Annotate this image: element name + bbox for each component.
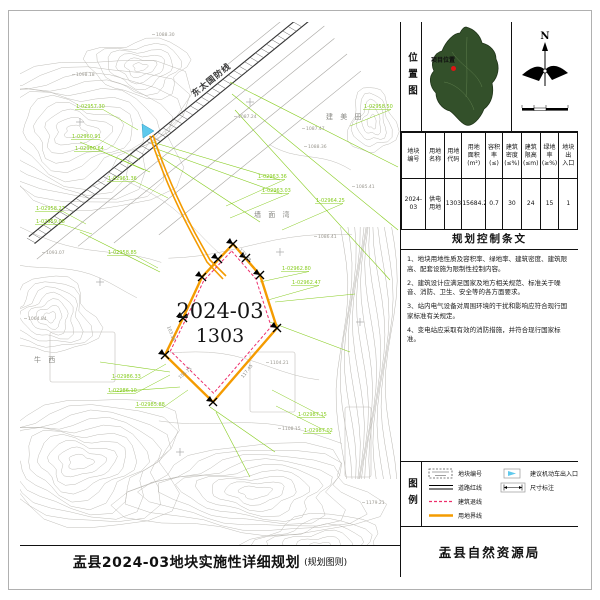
cadastral-code-label: 1-02985.88 xyxy=(136,402,165,408)
parcel-code-label: 2024-03 xyxy=(176,299,263,323)
spot-elevation-label: 1087.24 xyxy=(238,114,257,120)
highway-hatch xyxy=(239,66,247,71)
highway-hatch xyxy=(190,106,198,111)
legend-setback-line-icon xyxy=(428,496,454,507)
legend-item-label: 地块编号 xyxy=(458,469,482,478)
spot-elevation-label: 1085.41 xyxy=(356,184,375,190)
project-location-marker xyxy=(451,66,456,71)
highway-hatch xyxy=(87,190,95,195)
secondary-road-line xyxy=(37,26,324,259)
legend-road-redline-icon xyxy=(428,482,454,493)
compass-cell: N xyxy=(512,22,578,131)
slope-contour xyxy=(357,227,369,479)
table-header-cell: 容积率(≤) xyxy=(486,133,503,179)
legend-item: 道路红线 xyxy=(428,482,482,493)
table-value-cell: 0.7 xyxy=(486,179,503,230)
contour-line xyxy=(58,447,106,477)
table-value-cell: 2024-03 xyxy=(402,179,426,230)
highway-hatch xyxy=(27,238,35,243)
provisions-section: 规划控制条文 1、地块用地性质及容积率、绿地率、建筑密度、建筑限高、配套设施为限… xyxy=(401,230,578,462)
highway-hatch xyxy=(288,26,296,31)
highway-hatch xyxy=(272,40,280,45)
table-value-cell: 15 xyxy=(540,179,559,230)
north-arrow-icon: N xyxy=(512,22,578,130)
spot-elevation-label: 1087.47 xyxy=(306,126,325,132)
slope-contour xyxy=(352,227,364,479)
highway-hatch xyxy=(76,198,84,203)
legend-item-label: 建筑退线 xyxy=(458,497,482,506)
title-bar: 盂县2024-03地块实施性详细规划 (规划图则) xyxy=(20,545,400,577)
legend-parcel-number-icon xyxy=(428,468,454,479)
slope-contour xyxy=(373,227,385,479)
slope-contour xyxy=(348,227,360,479)
legend-label-cell: 图例 xyxy=(401,462,422,526)
highway-hatch xyxy=(223,79,231,84)
highway-hatch xyxy=(38,229,46,234)
contour-line xyxy=(20,417,162,515)
contour-line xyxy=(125,451,367,531)
provision-item: 1、地块用地性质及容积率、绿地率、建筑密度、建筑限高、配套设施为限制性控制内容。 xyxy=(407,255,572,275)
highway-hatch xyxy=(163,128,171,133)
contour-line xyxy=(20,227,161,262)
highway-hatch xyxy=(293,22,301,27)
spot-elevation-label: 1086.41 xyxy=(318,234,337,240)
cadastral-code-label: 1-02986.10 xyxy=(108,388,137,394)
highway-hatch xyxy=(130,154,138,159)
highway-hatch xyxy=(212,88,220,93)
cadastral-code-label: 1-02958.85 xyxy=(108,250,137,256)
cadastral-code-label: 1-02958.27 xyxy=(36,206,65,212)
contour-line xyxy=(297,536,342,545)
contour-line xyxy=(37,434,125,494)
table-header-cell: 地块编号 xyxy=(402,133,426,179)
cadastral-line xyxy=(216,412,250,477)
right-panel: 位置图 项目位置 N xyxy=(400,22,578,577)
contour-line xyxy=(195,470,309,517)
cadastral-code-label: 1-02961.36 xyxy=(108,176,137,182)
topographic-map-canvas: 东太国防线建 美 田墙 面 湾牛 西1088.301098.181087.241… xyxy=(20,22,400,545)
highway-hatch xyxy=(119,163,127,168)
slope-contour xyxy=(369,227,381,479)
contour-line xyxy=(212,477,296,512)
slope-contour xyxy=(336,227,348,479)
spot-elevation-label: 1064.84 xyxy=(28,316,47,322)
legend-land-boundary-icon xyxy=(428,510,454,521)
label-leader-line xyxy=(107,256,158,269)
spot-elevation-label: 1098.18 xyxy=(76,72,95,78)
slope-contour xyxy=(385,227,397,479)
table-header-cell: 建筑限高(≤m) xyxy=(521,133,540,179)
cadastral-line xyxy=(210,407,275,452)
cadastral-code-label: 1-02986.33 xyxy=(112,374,141,380)
contour-line xyxy=(47,440,117,485)
cadastral-line xyxy=(270,322,350,352)
cadastral-line xyxy=(230,82,398,167)
cadastral-code-label: 1-02987.15 xyxy=(298,412,327,418)
edge-length-label: 172.78 xyxy=(237,247,252,263)
label-leader-line xyxy=(268,286,319,301)
highway-hatch xyxy=(196,101,204,106)
contour-line xyxy=(83,38,191,100)
cadastral-code-label: 1-02987.02 xyxy=(304,428,333,434)
highway-hatch xyxy=(255,53,263,58)
sheet-subtitle: (规划图则) xyxy=(304,555,347,568)
map-layers: 东太国防线建 美 田墙 面 湾牛 西1088.301098.181087.241… xyxy=(20,22,399,545)
secondary-road-line xyxy=(78,38,334,246)
highway-hatch xyxy=(114,168,122,173)
location-label-cell: 位置图 xyxy=(401,22,422,131)
cadastral-code-label: 1-02959.08 xyxy=(36,219,65,225)
highway-hatch xyxy=(206,93,214,98)
provisions-title: 规划控制条文 xyxy=(401,230,578,250)
table-value-cell: 1303 xyxy=(445,179,462,230)
place-name-label: 牛 西 xyxy=(34,355,58,364)
slope-contour xyxy=(377,227,389,479)
cadastral-code-label: 1-02957.30 xyxy=(76,104,105,110)
highway-hatch xyxy=(217,84,225,89)
cadastral-code-label: 1-02963.03 xyxy=(262,188,291,194)
highway-hatch xyxy=(136,150,144,155)
county-shape-map xyxy=(422,22,511,131)
highway-hatch xyxy=(266,44,274,49)
legend-vehicle-entrance-icon xyxy=(500,468,526,479)
contour-line xyxy=(29,430,137,502)
slope-contour xyxy=(340,227,352,479)
highway-hatch xyxy=(60,212,68,217)
highway-hatch xyxy=(43,225,51,230)
bureau-name: 盂县自然资源局 xyxy=(401,527,578,576)
contour-line xyxy=(55,117,101,145)
provision-item: 2、建筑设计应满足国家及地方相关规范、标准关于噪音、消防、卫生、安全等的各方面要… xyxy=(407,279,572,299)
legend-dimension-icon xyxy=(500,482,526,493)
location-label: 位置图 xyxy=(404,52,418,102)
highway-hatch xyxy=(277,35,285,40)
road-name-label: 东太国防线 xyxy=(190,61,234,99)
table-value-cell: 15684.25 xyxy=(462,179,486,230)
cadastral-line xyxy=(100,362,170,372)
parcel-spec-table: 地块编号用地名称用地代码用地面积(m²)容积率(≤)建筑密度(≤%)建筑限高(≤… xyxy=(401,132,578,230)
legend-label: 图例 xyxy=(404,478,418,511)
spot-elevation-label: 1093.07 xyxy=(46,250,65,256)
contour-line xyxy=(238,486,272,499)
contour-line xyxy=(20,405,178,522)
table-header-cell: 用地代码 xyxy=(445,133,462,179)
place-name-label: 墙 面 湾 xyxy=(254,210,292,219)
legend-items: 地块编号道路红线建筑退线用地界线建议机动车出入口尺寸标注 xyxy=(422,462,578,526)
parcel-spec-table-section: 地块编号用地名称用地代码用地面积(m²)容积率(≤)建筑密度(≤%)建筑限高(≤… xyxy=(401,132,578,230)
location-minimap: 项目位置 xyxy=(422,22,512,131)
table-value-cell: 1 xyxy=(559,179,578,230)
legend-item-label: 用地界线 xyxy=(458,511,482,520)
legend-item-label: 尺寸标注 xyxy=(530,483,554,492)
cadastral-code-label: 1-02960.64 xyxy=(75,146,104,152)
north-letter: N xyxy=(540,31,549,42)
cadastral-line xyxy=(275,294,355,302)
table-header-cell: 用地面积(m²) xyxy=(462,133,486,179)
cadastral-code-label: 1-02960.91 xyxy=(72,134,101,140)
parcel-landuse-code-label: 1303 xyxy=(196,325,244,347)
spot-elevation-label: 1179.21 xyxy=(366,500,385,506)
highway-hatch xyxy=(261,49,269,54)
highway-hatch xyxy=(98,181,106,186)
cadastral-code-label: 1-02963.36 xyxy=(258,174,287,180)
spot-elevation-label: 1088.30 xyxy=(156,32,175,38)
spot-elevation-label: 1088.36 xyxy=(308,144,327,150)
contour-line xyxy=(20,265,137,298)
table-header-cell: 绿地率(≥%) xyxy=(540,133,559,179)
highway-hatch xyxy=(92,185,100,190)
contour-line xyxy=(20,287,83,343)
legend-item-label: 道路红线 xyxy=(458,483,482,492)
provisions-body: 1、地块用地性质及容积率、绿地率、建筑密度、建筑限高、配套设施为限制性控制内容。… xyxy=(401,250,578,354)
highway-hatch xyxy=(70,203,78,208)
scale-bar xyxy=(522,105,568,111)
highway-hatch xyxy=(250,57,258,62)
contour-line xyxy=(69,454,95,469)
legend-item: 建议机动车出入口 xyxy=(500,468,578,479)
provision-item: 4、变电站应采取有效的消防措施，并符合现行国家标准。 xyxy=(407,326,572,346)
project-location-label: 项目位置 xyxy=(431,55,455,64)
highway-hatch xyxy=(283,31,291,36)
cadastral-code-label: 1-02964.25 xyxy=(316,198,345,204)
spot-elevation-label: 1108.15 xyxy=(282,426,301,432)
provision-item: 3、站内电气设备对周围环境的干扰和影响应符合现行国家标准有关规定。 xyxy=(407,302,572,322)
table-header-cell: 建筑密度(≤%) xyxy=(502,133,521,179)
contour-line xyxy=(20,410,171,519)
slope-contour xyxy=(381,227,393,479)
field-outline xyxy=(50,332,115,382)
slope-contour xyxy=(344,227,356,479)
cadastral-code-label: 1-02962.47 xyxy=(292,280,321,286)
cadastral-code-label: 1-02962.80 xyxy=(282,266,311,272)
highway-hatch xyxy=(141,146,149,151)
plan-sheet: 东太国防线建 美 田墙 面 湾牛 西1088.301098.181087.241… xyxy=(0,0,600,600)
table-value-cell: 24 xyxy=(521,179,540,230)
table-value-cell: 30 xyxy=(502,179,521,230)
legend-item: 地块编号 xyxy=(428,468,482,479)
legend-item: 尺寸标注 xyxy=(500,482,554,493)
contour-line xyxy=(367,114,376,129)
cadastral-code-label: 1-02958.50 xyxy=(364,104,393,110)
contour-line xyxy=(236,513,393,545)
location-section: 位置图 项目位置 N xyxy=(401,22,578,132)
legend-section: 图例 地块编号道路红线建筑退线用地界线建议机动车出入口尺寸标注 xyxy=(401,462,578,527)
highway-hatch xyxy=(201,97,209,102)
cadastral-line xyxy=(235,110,390,280)
highway-hatch xyxy=(228,75,236,80)
highway-hatch xyxy=(234,71,242,76)
spot-elevation-label: 1104.21 xyxy=(270,360,289,366)
contour-line xyxy=(138,455,346,526)
contour-line xyxy=(20,60,192,210)
highway-hatch xyxy=(245,62,253,67)
legend-item-label: 建议机动车出入口 xyxy=(530,469,578,478)
contour-line xyxy=(175,464,323,521)
table-value-cell: 供电用地 xyxy=(425,179,445,230)
legend-item: 建筑退线 xyxy=(428,496,482,507)
table-header-cell: 用地名称 xyxy=(425,133,445,179)
contour-line xyxy=(282,530,353,545)
table-header-cell: 地块出入口 xyxy=(559,133,578,179)
highway-hatch xyxy=(185,110,193,115)
planning-map: 东太国防线建 美 田墙 面 湾牛 西1088.301098.181087.241… xyxy=(20,22,400,545)
sheet-title: 盂县2024-03地块实施性详细规划 xyxy=(73,552,300,572)
place-name-label: 建 美 田 xyxy=(326,112,364,121)
edge-length-label: 117.45 xyxy=(240,363,255,379)
label-leader-line xyxy=(75,110,138,131)
contour-line xyxy=(133,63,148,72)
highway-hatch xyxy=(65,207,73,212)
legend-item: 用地界线 xyxy=(428,510,482,521)
